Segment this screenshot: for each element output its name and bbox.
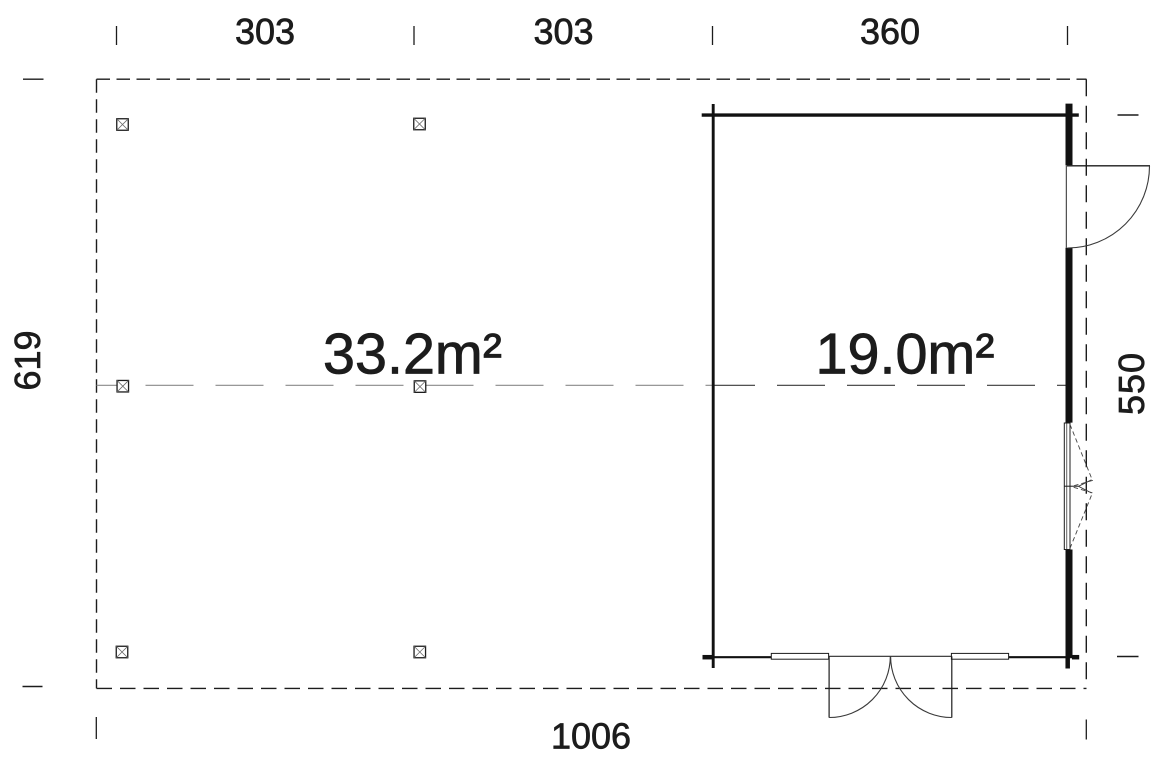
svg-text:1006: 1006	[551, 716, 631, 757]
svg-text:360: 360	[860, 11, 920, 52]
svg-text:619: 619	[7, 330, 48, 390]
svg-text:550: 550	[1111, 352, 1152, 415]
svg-text:19.0m²: 19.0m²	[816, 323, 995, 387]
svg-text:303: 303	[235, 11, 295, 52]
svg-text:33.2m²: 33.2m²	[323, 323, 502, 387]
svg-text:303: 303	[533, 11, 593, 52]
